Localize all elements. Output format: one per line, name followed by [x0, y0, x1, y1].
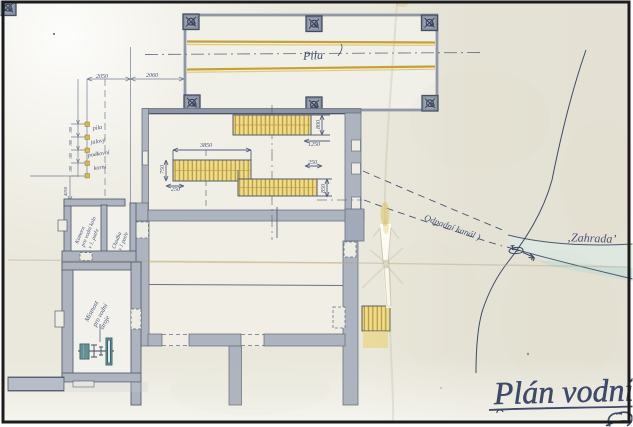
svg-text:1250: 1250 — [308, 142, 320, 148]
svg-text:750: 750 — [160, 165, 166, 174]
svg-text:180: 180 — [68, 140, 73, 146]
svg-text:180: 180 — [68, 166, 73, 172]
svg-text:180: 180 — [68, 127, 73, 133]
svg-text:2060: 2060 — [146, 73, 158, 79]
svg-text:2050: 2050 — [96, 74, 108, 80]
svg-text:3850: 3850 — [199, 143, 212, 149]
svg-text:850: 850 — [321, 184, 327, 193]
svg-text:180: 180 — [68, 153, 73, 159]
svg-text:800: 800 — [316, 120, 322, 129]
svg-text:250: 250 — [171, 187, 180, 193]
svg-text:Pila: Pila — [302, 48, 324, 63]
svg-text:4050: 4050 — [63, 186, 68, 196]
svg-text:250: 250 — [308, 160, 317, 166]
